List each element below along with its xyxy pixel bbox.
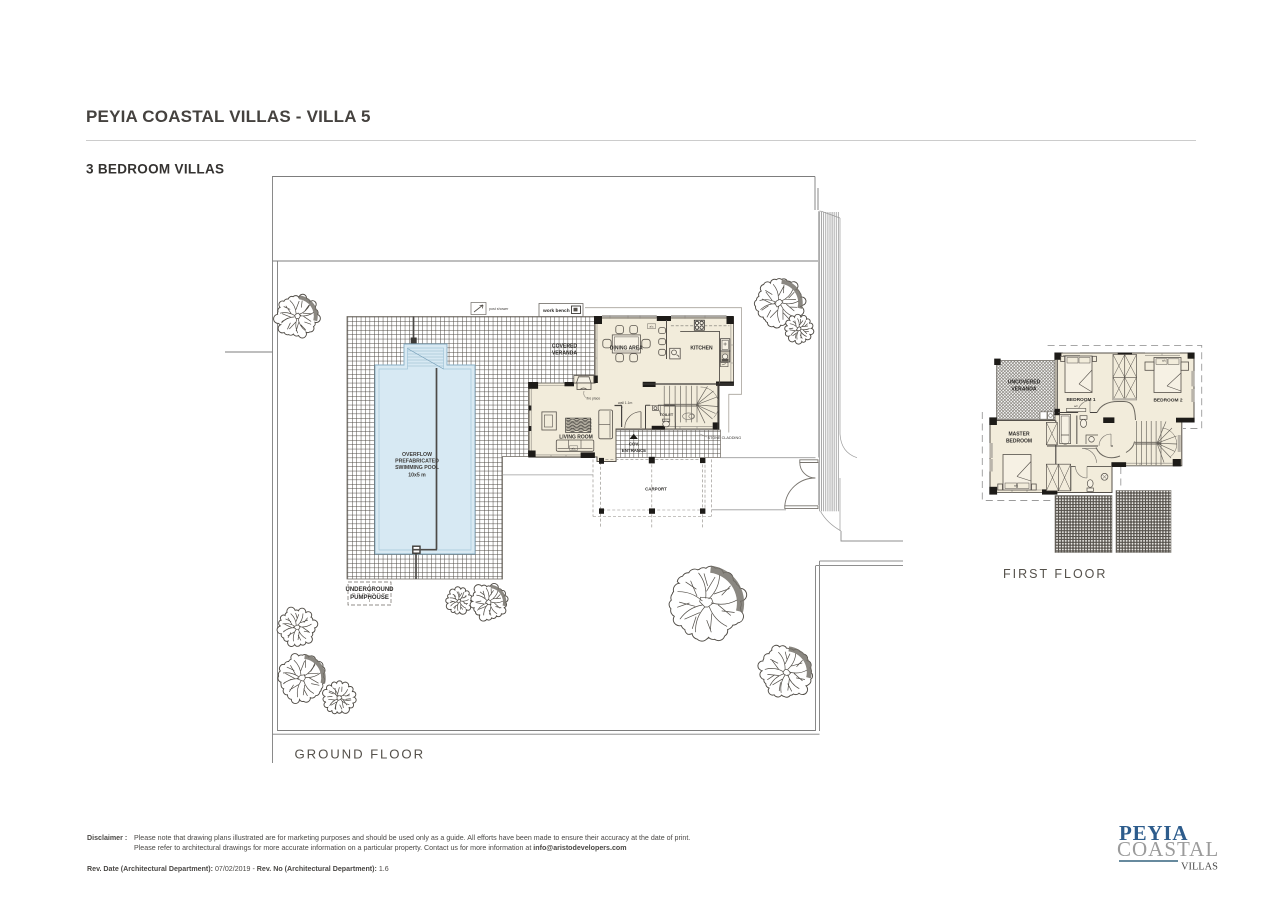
svg-text:VILLAS: VILLAS (1181, 862, 1218, 873)
svg-text:a/c: a/c (1074, 404, 1079, 408)
svg-text:MASTER: MASTER (1008, 432, 1030, 438)
svg-text:VERANDA: VERANDA (552, 351, 578, 357)
svg-text:3 BEDROOM VILLAS: 3 BEDROOM VILLAS (86, 162, 224, 177)
svg-text:COVERED: COVERED (552, 344, 578, 350)
svg-text:Disclaimer :: Disclaimer : (87, 834, 127, 842)
svg-text:KITCHEN: KITCHEN (690, 345, 713, 351)
svg-text:BEDROOM: BEDROOM (1006, 439, 1032, 445)
svg-text:OVERFLOW: OVERFLOW (402, 452, 432, 458)
svg-text:a/c: a/c (1014, 484, 1019, 488)
svg-text:COV.: COV. (629, 442, 639, 447)
svg-text:fire place: fire place (587, 397, 601, 401)
svg-text:SWIMMING POOL: SWIMMING POOL (395, 465, 440, 471)
svg-text:a/c: a/c (571, 446, 576, 450)
svg-text:PEYIA COASTAL VILLAS - VILLA 5: PEYIA COASTAL VILLAS - VILLA 5 (86, 107, 371, 126)
svg-text:a/c: a/c (1162, 359, 1167, 363)
svg-text:work bench: work bench (542, 308, 570, 314)
svg-text:PREFABRICATED: PREFABRICATED (395, 459, 439, 465)
svg-text:UNCOVERED: UNCOVERED (1008, 380, 1041, 386)
svg-text:CARPORT: CARPORT (645, 487, 667, 492)
svg-text:BEDROOM 2: BEDROOM 2 (1153, 398, 1182, 404)
svg-text:Rev. Date (Architectural Depar: Rev. Date (Architectural Department): 07… (87, 865, 389, 873)
svg-text:LIVING ROOM: LIVING ROOM (559, 434, 593, 440)
svg-text:BEDROOM 1: BEDROOM 1 (1066, 397, 1095, 403)
svg-text:a/c: a/c (649, 325, 654, 329)
svg-text:TOILET: TOILET (660, 413, 674, 417)
svg-text:FIRST FLOOR: FIRST FLOOR (1003, 567, 1107, 581)
svg-text:VERANDA: VERANDA (1011, 387, 1037, 393)
svg-text:Please note that drawing plans: Please note that drawing plans illustrat… (134, 834, 690, 842)
svg-text:post shower: post shower (489, 307, 509, 311)
svg-text:ENTRANCE: ENTRANCE (622, 448, 646, 453)
svg-text:UNDERGROUND: UNDERGROUND (346, 587, 395, 593)
svg-text:COASTAL: COASTAL (1117, 837, 1219, 861)
svg-text:Please refer to architectural: Please refer to architectural drawings f… (134, 844, 627, 852)
svg-text:STONE CLADDING: STONE CLADDING (708, 436, 742, 440)
svg-text:10x5 m: 10x5 m (408, 473, 426, 479)
svg-text:DINING AREA: DINING AREA (610, 346, 643, 352)
svg-text:PUMPHOUSE: PUMPHOUSE (350, 595, 389, 601)
svg-text:GROUND FLOOR: GROUND FLOOR (295, 747, 426, 762)
